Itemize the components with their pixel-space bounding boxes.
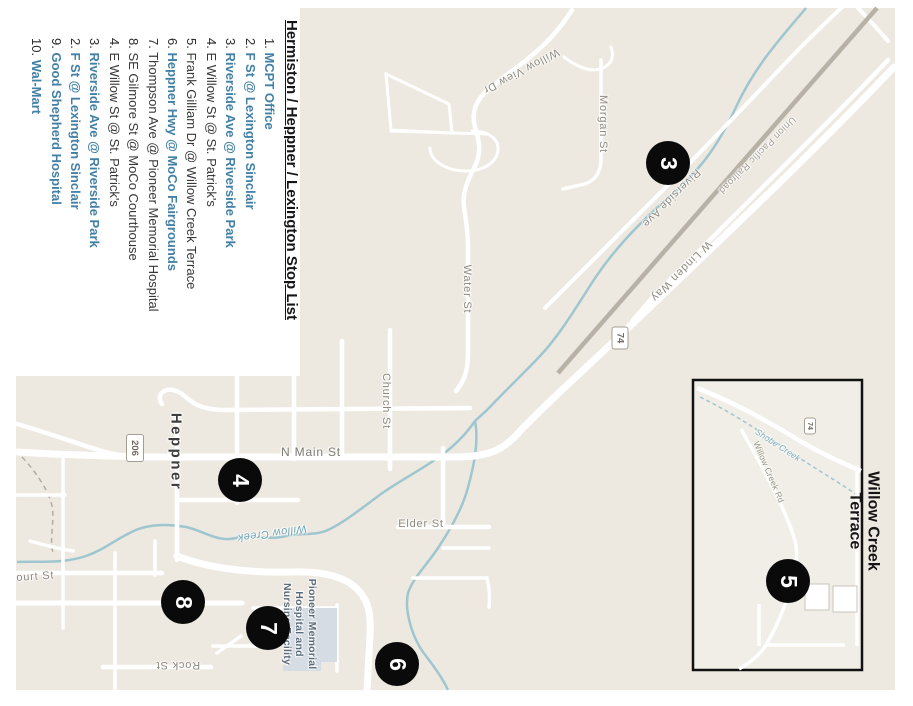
stop-marker-3: 3	[646, 141, 690, 185]
stop-item: 2. F St @ Lexington Sinclair	[66, 20, 85, 366]
page-title: Hermiston / Heppner / Lexington Stop Lis…	[281, 20, 301, 366]
stop-item: 2. F St @ Lexington Sinclair	[240, 20, 259, 366]
street-label-elder-st: Elder St	[398, 518, 444, 530]
street-label-w-linden-way: W Linden Way	[648, 238, 714, 304]
street-label-morgan-st: Morgan St	[597, 95, 609, 153]
inset-route-74-shield: 74	[804, 418, 816, 435]
stop-marker-8: 8	[161, 580, 205, 624]
stop-item: 1. MCPT Office	[260, 20, 279, 366]
map-page: N Main St Elder St Court St Rock St Chur…	[0, 0, 913, 706]
route-74-shield: 74	[612, 327, 629, 350]
stop-list-items: 1. MCPT Office2. F St @ Lexington Sincla…	[27, 20, 279, 366]
stop-item: 10. Wal-Mart	[27, 20, 46, 366]
stop-item: 4. E Willow St @ St. Patrick's	[104, 20, 123, 366]
hospital-label-line1: Pioneer Memorial	[305, 559, 318, 689]
stop-marker-4-number: 4	[226, 474, 253, 487]
stop-item: 6. Heppner Hwy @ MoCo Fairgrounds	[163, 20, 182, 366]
street-label-church-st: Church St	[380, 373, 392, 429]
stop-marker-7-number: 7	[254, 622, 281, 635]
stop-marker-5: 5	[766, 559, 810, 603]
stop-item: 5. Frank Gilliam Dr @ Willow Creek Terra…	[182, 20, 201, 366]
stop-marker-8-number: 8	[169, 596, 196, 609]
route-206-shield: 206	[126, 434, 144, 462]
stop-item: 3. Riverside Ave @ Riverside Park	[85, 20, 104, 366]
willow-creek-label: Willow Creek	[236, 522, 307, 544]
inset-title-line2: Terrace	[847, 461, 865, 581]
street-label-willow-view-dr: Willow View Dr	[481, 46, 561, 96]
inset-title-line1: Willow Creek	[864, 461, 882, 581]
stop-marker-3-number: 3	[654, 157, 681, 170]
stop-marker-7: 7	[246, 606, 290, 650]
stop-item: 4. E Willow St @ St. Patrick's	[201, 20, 220, 366]
stop-item: 7. Thompson Ave @ Pioneer Memorial Hospi…	[143, 20, 162, 366]
stop-marker-6: 6	[375, 642, 419, 686]
inset-title-willow-creek-terrace: Willow Creek Terrace	[847, 461, 882, 581]
stop-item: 9. Good Shepherd Hospital	[46, 20, 65, 366]
stop-item: 8. SE Gilmore St @ MoCo Courthouse	[124, 20, 143, 366]
stop-list-rotated-block: Hermiston / Heppner / Lexington Stop Lis…	[28, 20, 301, 366]
stop-marker-4: 4	[218, 458, 262, 502]
stop-marker-5-number: 5	[774, 575, 801, 588]
street-label-water-st: Water St	[461, 265, 473, 314]
street-label-rock-st: Rock St	[156, 659, 200, 671]
stop-marker-6-number: 6	[383, 658, 410, 671]
city-label-heppner: Heppner	[168, 413, 185, 491]
stop-item: 3. Riverside Ave @ Riverside Park	[221, 20, 240, 366]
hospital-label-line2: Hospital and	[293, 559, 306, 689]
railroad-label: Union Pacific Railroad	[716, 114, 798, 196]
street-label-n-main-st: N Main St	[281, 445, 341, 459]
